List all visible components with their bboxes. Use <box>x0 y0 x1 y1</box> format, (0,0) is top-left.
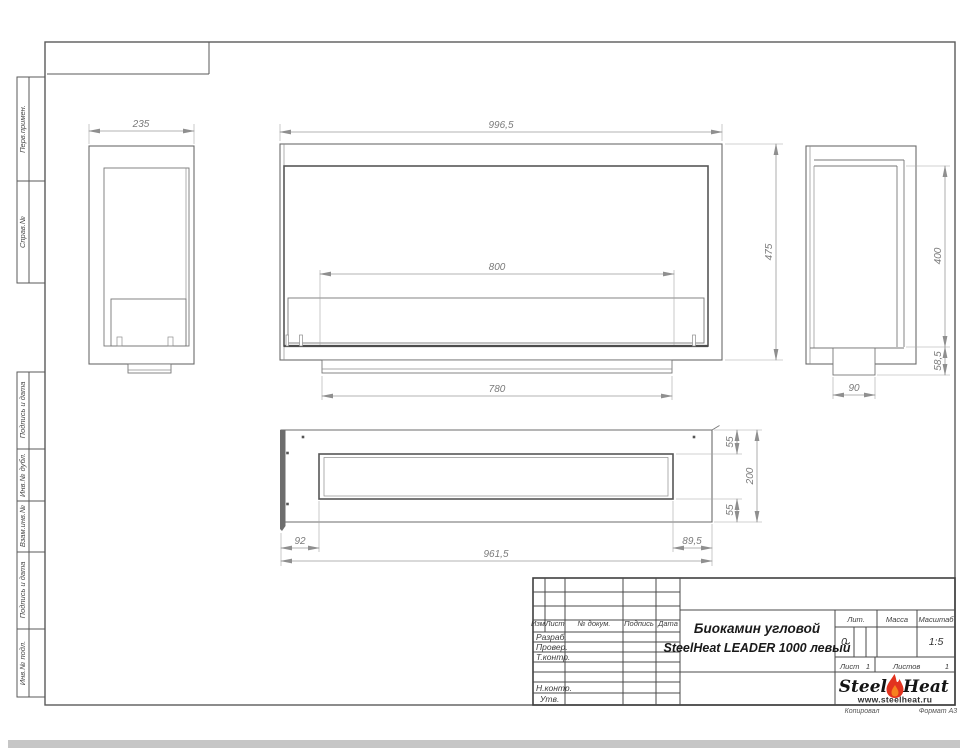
dim-plan-bottom-stack: 92 89,5 961,5 <box>281 501 712 566</box>
dim-plan-right-stack: 55 200 55 <box>676 430 762 522</box>
dim-side-bottom: 58,5 <box>877 347 950 375</box>
dim-value: 800 <box>489 262 506 273</box>
dim-value: 961,5 <box>483 549 508 560</box>
gost-sidebar: Перв.примен. Справ.№ Подпись и дата Инв.… <box>17 77 45 697</box>
burner-bolt <box>300 335 303 346</box>
stamp-col-list: Лист <box>544 619 564 628</box>
dim-value: 235 <box>132 119 150 130</box>
burner-bolt <box>693 335 696 346</box>
stamp-row-nkontr: Н.контр. <box>536 683 572 693</box>
mount-hole <box>286 503 289 506</box>
dim-value: 475 <box>764 243 775 260</box>
dim-front-burner: 800 <box>320 262 674 345</box>
mount-hole <box>302 436 305 439</box>
stamp-sheets-label: Листов <box>892 662 920 671</box>
stamp-col-sign: Подпись <box>624 619 654 628</box>
dim-front-height: 475 <box>725 144 783 360</box>
dim-front-width: 996,5 <box>280 120 722 141</box>
dim-value: 400 <box>933 247 944 264</box>
copied-note: Копировал <box>845 708 880 715</box>
view-left-side: 235 <box>89 119 194 373</box>
stamp-col-date: Дата <box>657 619 678 628</box>
stamp-row-prover: Провер. <box>536 642 568 652</box>
dim-side-foot: 90 <box>833 377 875 399</box>
stamp-sheet-num: 1 <box>866 662 870 671</box>
sidebar-label: Подпись и дата <box>18 382 27 439</box>
stamp-row-razrab: Разраб. <box>536 632 567 642</box>
format-note: Формат А3 <box>919 708 957 715</box>
view-front: 996,5 800 475 780 <box>280 120 783 400</box>
stamp-row-tkontr: Т.контр. <box>536 652 570 662</box>
burner-bolt <box>286 335 289 346</box>
stamp-sheet-label: Лист <box>839 662 859 671</box>
title-block: Изм. Лист № докум. Подпись Дата Разраб. … <box>531 578 955 705</box>
dim-side-height: 400 <box>906 166 950 347</box>
stamp-sheets-num: 1 <box>945 662 949 671</box>
dim-value: 90 <box>848 383 860 394</box>
steelheat-logo: Steel Heat www.steelheat.ru <box>839 674 949 705</box>
blueprint-svg: Перв.примен. Справ.№ Подпись и дата Инв.… <box>0 0 970 749</box>
dim-left-width: 235 <box>89 119 194 144</box>
dim-value: 55 <box>725 436 736 448</box>
view-plan: 55 200 55 92 89,5 961,5 <box>280 426 762 567</box>
dim-value: 58,5 <box>933 351 944 371</box>
dim-front-base: 780 <box>322 376 672 400</box>
stamp-lit-label: Лит. <box>846 615 865 624</box>
doc-title-line2: SteelHeat LEADER 1000 левый <box>663 641 850 655</box>
sidebar-label: Инв.№ дубл. <box>18 453 27 497</box>
page-bottom-edge <box>8 740 960 748</box>
dim-value: 780 <box>489 384 506 395</box>
sheet-frame <box>45 42 955 705</box>
sidebar-label: Справ.№ <box>18 216 27 248</box>
dim-value: 92 <box>294 536 306 547</box>
sidebar-label: Подпись и дата <box>18 562 27 619</box>
stamp-scale-label: Масштаб <box>918 615 954 624</box>
stamp-col-doc: № докум. <box>577 619 610 628</box>
dim-value: 55 <box>725 504 736 516</box>
stamp-mass-label: Масса <box>886 615 908 624</box>
stamp-lit-value: 0 <box>841 636 847 648</box>
view-right-side: 400 58,5 90 <box>806 146 950 399</box>
dim-value: 996,5 <box>488 120 513 131</box>
doc-title-line1: Биокамин угловой <box>694 621 821 636</box>
dim-value: 200 <box>745 467 756 485</box>
sidebar-label: Инв.№ подл. <box>18 641 27 685</box>
mount-hole <box>286 452 289 455</box>
stamp-scale-value: 1:5 <box>929 636 944 648</box>
dim-value: 89,5 <box>682 536 702 547</box>
stamp-row-utv: Утв. <box>539 694 559 704</box>
blueprint-page: Перв.примен. Справ.№ Подпись и дата Инв.… <box>0 0 970 749</box>
sidebar-label: Взам.инв.№ <box>18 505 27 547</box>
corner-flange <box>280 430 286 531</box>
logo-url: www.steelheat.ru <box>857 695 932 705</box>
sidebar-label: Перв.примен. <box>18 105 27 153</box>
mount-hole <box>693 436 696 439</box>
